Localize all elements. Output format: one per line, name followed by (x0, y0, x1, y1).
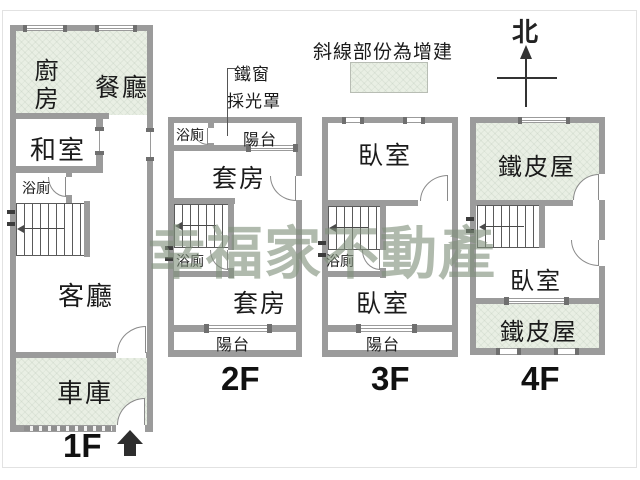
floor-plan-canvas: 廚房 餐廳 和室 浴廁 客廳 車庫 1F (0, 0, 640, 480)
window-cap (554, 348, 558, 355)
watermark: 幸福家不動產 (148, 208, 496, 290)
window (500, 349, 517, 354)
window-cap (518, 117, 522, 124)
north-arrow-crossbar (497, 77, 557, 79)
door-gap (599, 174, 605, 200)
wall (599, 117, 605, 355)
door-gap (599, 240, 605, 266)
wall (470, 348, 605, 355)
window (522, 120, 566, 121)
north-label: 北 (512, 12, 538, 49)
wall (539, 205, 545, 248)
window (558, 349, 575, 354)
door-arc (571, 240, 599, 266)
room-label-metal-roof-front: 鐵皮屋 (498, 147, 576, 182)
window-cap (504, 297, 509, 305)
legend-label: 斜線部份為增建 (313, 37, 453, 64)
floor-label-4f: 4F (521, 360, 560, 398)
window-cap (517, 348, 521, 355)
window-cap (564, 297, 569, 305)
room-label-bedroom: 臥室 (510, 261, 562, 296)
room-label-metal-roof-rear: 鐵皮屋 (500, 312, 578, 347)
legend-addition-swatch (350, 62, 428, 93)
window-cap (575, 348, 579, 355)
window (509, 301, 564, 302)
north-arrow-stem (525, 57, 527, 107)
window-cap (496, 348, 500, 355)
window-cap (566, 117, 570, 124)
